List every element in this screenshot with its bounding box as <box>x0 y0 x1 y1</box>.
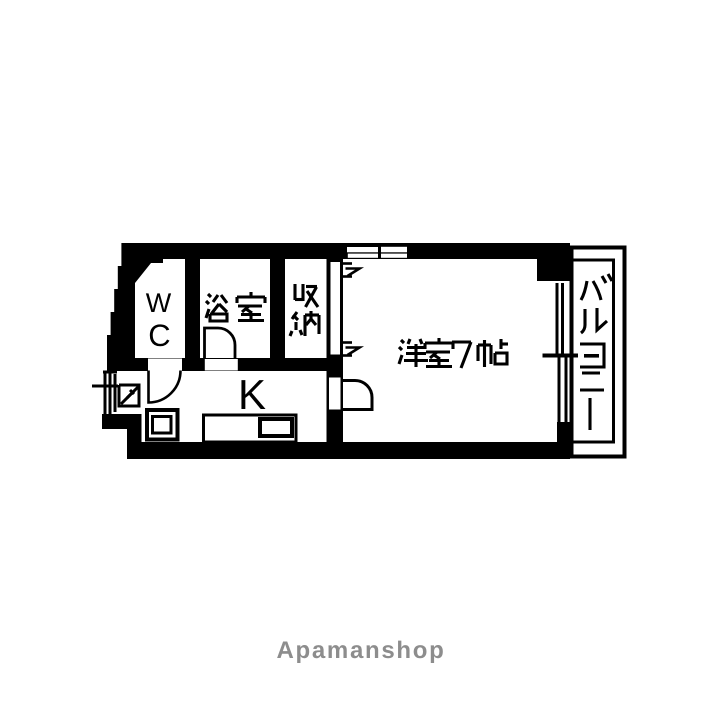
svg-text:K: K <box>238 371 266 418</box>
svg-text:C: C <box>148 318 170 353</box>
svg-text:Apamanshop: Apamanshop <box>276 637 445 664</box>
svg-text:W: W <box>146 288 172 318</box>
